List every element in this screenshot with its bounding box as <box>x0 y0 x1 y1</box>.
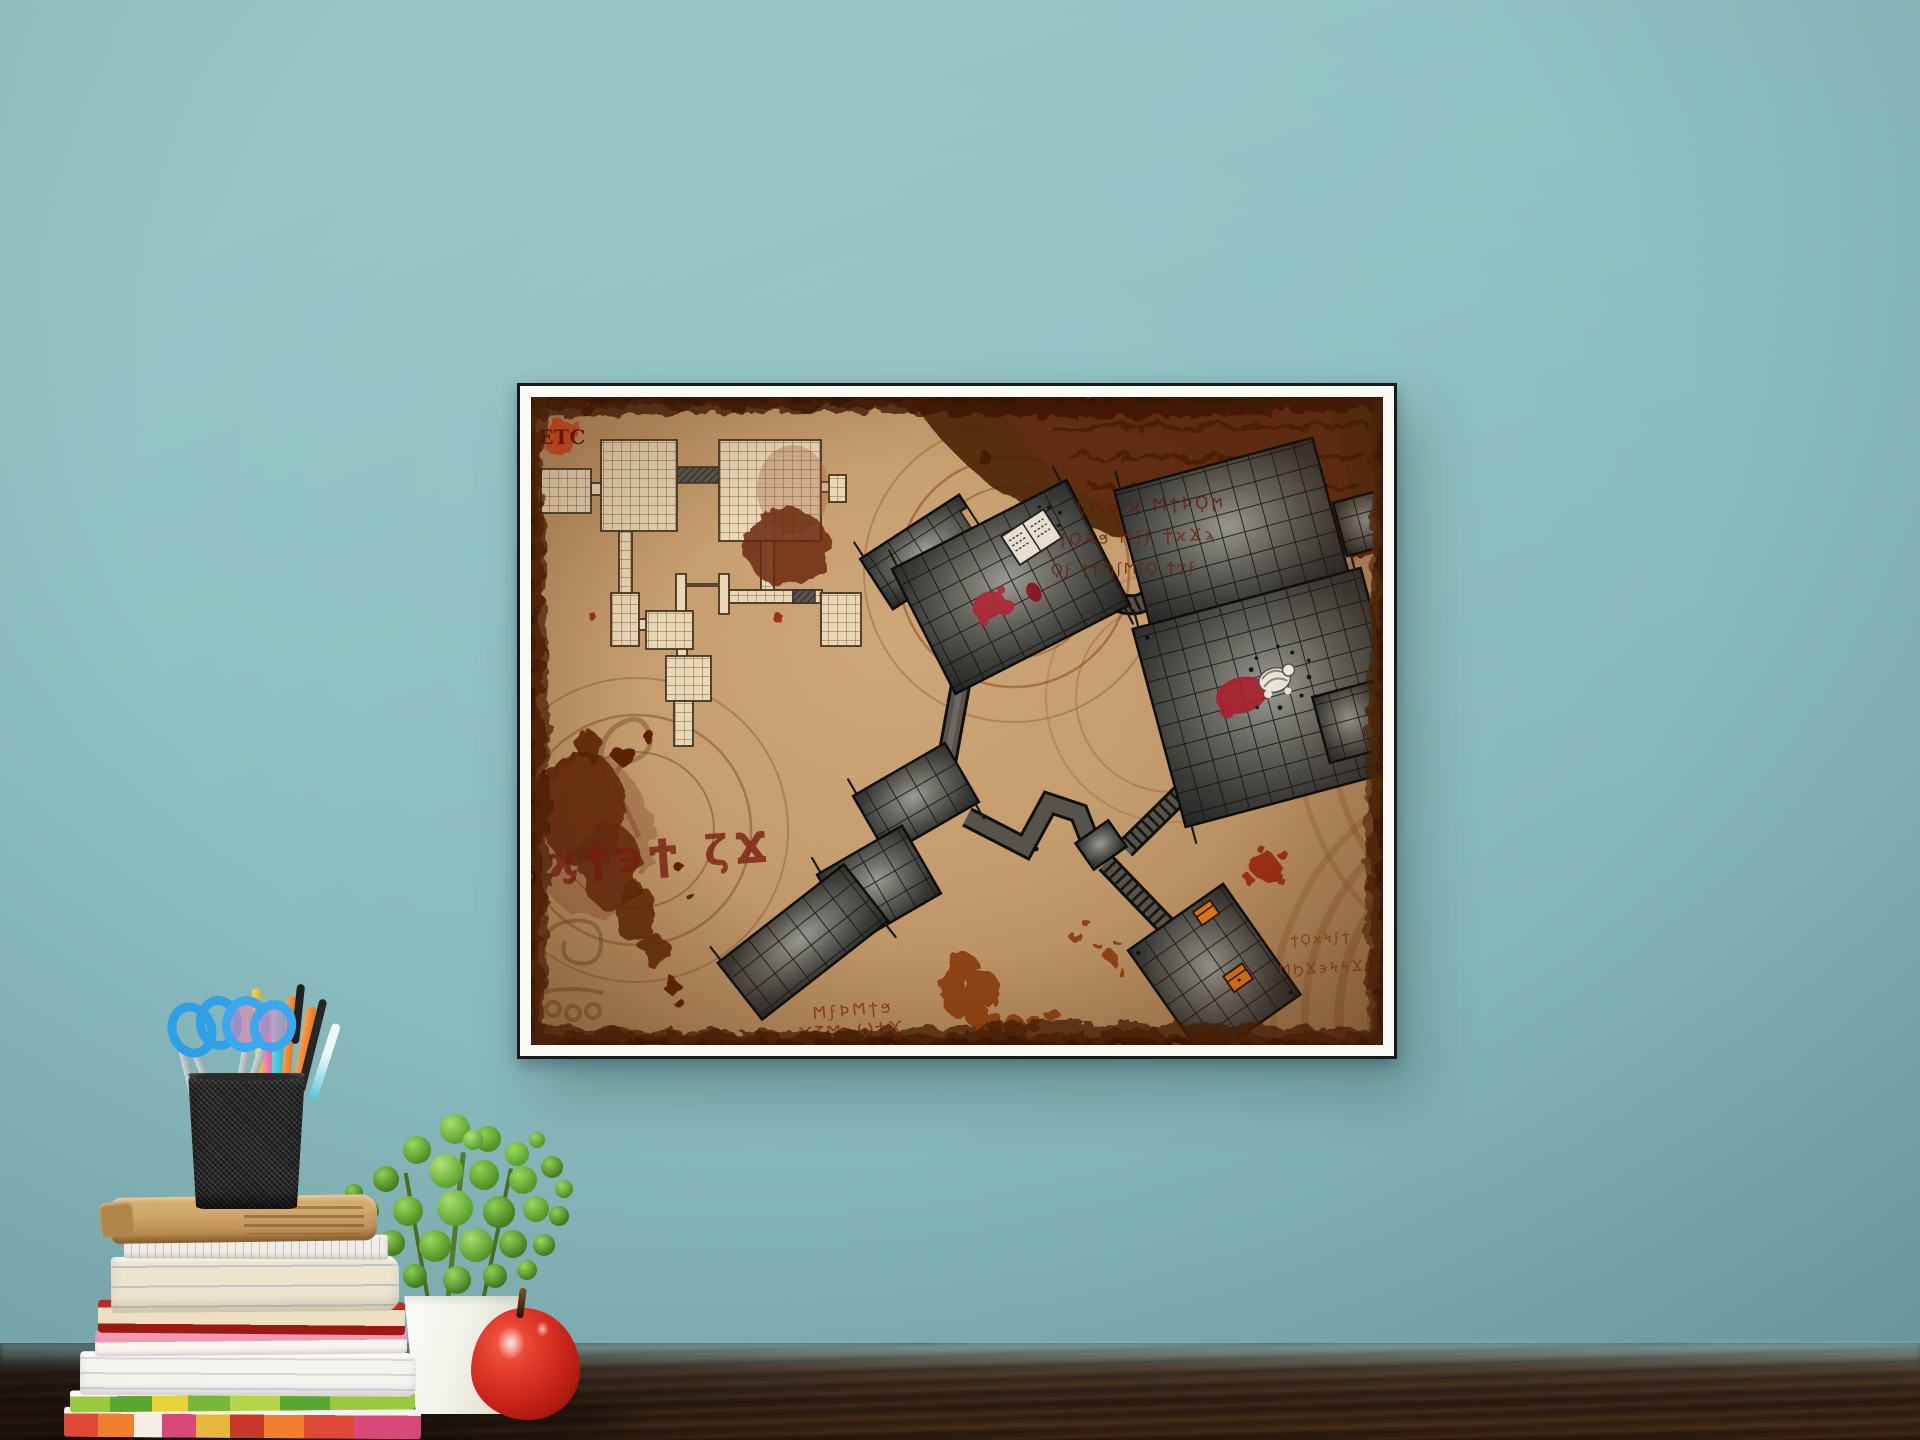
leaf <box>463 1130 483 1150</box>
leaf <box>509 1166 537 1194</box>
parchment: ϞϺ϶·ϗ ϺϯϷϘϻ ʃϘϞϧ Ϻʃϝ ϮϰϪϡ Ϙϝ ϮϯϠʃϺʃϘ ϮϮϝ… <box>531 397 1383 1045</box>
book-cream-thick <box>111 1255 399 1313</box>
leaf <box>373 1166 399 1192</box>
leaf <box>499 1230 527 1258</box>
leaf <box>403 1136 431 1164</box>
print-white-border: ϞϺ϶·ϗ ϺϯϷϘϻ ʃϘϞϧ Ϻʃϝ ϮϰϪϡ Ϙϝ ϮϯϠʃϺʃϘ ϮϮϝ… <box>520 386 1394 1056</box>
framed-map: ϞϺ϶·ϗ ϺϯϷϘϻ ʃϘϞϧ Ϻʃϝ ϮϰϪϡ Ϙϝ ϮϯϠʃϺʃϘ ϮϮϝ… <box>517 383 1397 1059</box>
pencil-cup-mesh <box>188 1073 305 1209</box>
leaf <box>483 1196 515 1228</box>
leaf <box>533 1234 555 1256</box>
leaf <box>437 1190 473 1226</box>
leaf <box>505 1142 529 1166</box>
book-stack <box>64 1196 426 1440</box>
journal-strap <box>98 1200 135 1237</box>
leaf <box>523 1196 549 1222</box>
scene: ϞϺ϶·ϗ ϺϯϷϘϻ ʃϘϞϧ Ϻʃϝ ϮϰϪϡ Ϙϝ ϮϯϠʃϺʃϘ ϮϮϝ… <box>0 0 1920 1440</box>
rune-line-tr3: Ϙϝ ϮϯϠʃϺʃϘ ϮϮϝ <box>1051 558 1198 579</box>
apple-highlight-small <box>536 1321 549 1337</box>
leaf <box>541 1156 563 1178</box>
leaf <box>443 1266 471 1294</box>
leaf <box>517 1260 537 1280</box>
leaf <box>469 1160 499 1190</box>
dungeon-map-art: ϞϺ϶·ϗ ϺϯϷϘϻ ʃϘϞϧ Ϻʃϝ ϮϰϪϡ Ϙϝ ϮϯϠʃϺʃϘ ϮϮϝ… <box>531 397 1383 1045</box>
apple-highlight <box>497 1326 525 1360</box>
leaf <box>555 1180 573 1198</box>
leaf <box>483 1264 507 1288</box>
hatched-corridor <box>793 590 815 603</box>
leaf <box>429 1154 463 1188</box>
journal-grooves <box>244 1206 364 1234</box>
hatched-corridor <box>677 467 719 483</box>
leaf <box>459 1228 493 1262</box>
book-white-thick <box>80 1351 416 1397</box>
leaf <box>529 1132 545 1148</box>
leaf <box>549 1206 569 1226</box>
